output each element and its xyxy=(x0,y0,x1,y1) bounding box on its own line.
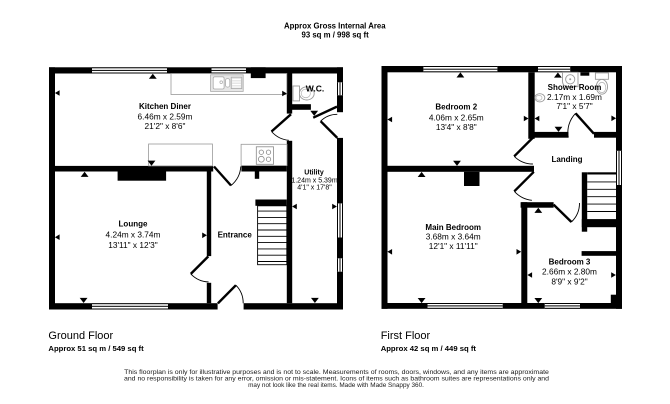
svg-text:Kitchen Diner: Kitchen Diner xyxy=(139,102,191,111)
svg-text:Approx Gross Internal Area: Approx Gross Internal Area xyxy=(284,22,386,31)
svg-text:8'9" x 9'2": 8'9" x 9'2" xyxy=(551,276,587,286)
svg-text:13'4" x 8'8": 13'4" x 8'8" xyxy=(436,122,477,132)
svg-text:93 sq m / 998 sq ft: 93 sq m / 998 sq ft xyxy=(302,31,370,40)
svg-text:W.C.: W.C. xyxy=(306,83,324,93)
svg-text:7'1" x 5'7": 7'1" x 5'7" xyxy=(556,101,592,111)
svg-text:Approx 42 sq m / 449 sq ft: Approx 42 sq m / 449 sq ft xyxy=(381,344,477,353)
svg-text:Lounge: Lounge xyxy=(119,220,148,229)
svg-text:Bedroom 2: Bedroom 2 xyxy=(435,103,477,112)
svg-text:Approx 51 sq m / 549 sq ft: Approx 51 sq m / 549 sq ft xyxy=(48,344,144,353)
svg-text:Utility: Utility xyxy=(304,169,324,176)
svg-text:3.68m x 3.64m: 3.68m x 3.64m xyxy=(426,231,481,241)
svg-text:4.06m x 2.65m: 4.06m x 2.65m xyxy=(429,112,484,122)
svg-text:4'1" x 17'8": 4'1" x 17'8" xyxy=(297,185,332,192)
svg-text:Entrance: Entrance xyxy=(218,230,253,239)
svg-text:4.24m x 3.74m: 4.24m x 3.74m xyxy=(106,230,161,240)
svg-text:13'11" x 12'3": 13'11" x 12'3" xyxy=(108,240,158,250)
svg-text:2.66m x 2.80m: 2.66m x 2.80m xyxy=(542,266,597,276)
svg-text:Ground Floor: Ground Floor xyxy=(48,330,113,342)
svg-text:21'2" x 8'6": 21'2" x 8'6" xyxy=(145,121,186,131)
svg-text:Shower Room: Shower Room xyxy=(548,83,602,92)
svg-text:Landing: Landing xyxy=(551,155,582,164)
svg-text:12'1" x 11'11": 12'1" x 11'11" xyxy=(429,241,478,251)
svg-text:First Floor: First Floor xyxy=(381,330,431,342)
svg-text:may not look like the real ite: may not look like the real items. Made w… xyxy=(248,382,424,389)
svg-text:Bedroom 3: Bedroom 3 xyxy=(549,257,591,266)
svg-text:1.24m x 5.39m: 1.24m x 5.39m xyxy=(291,178,337,185)
